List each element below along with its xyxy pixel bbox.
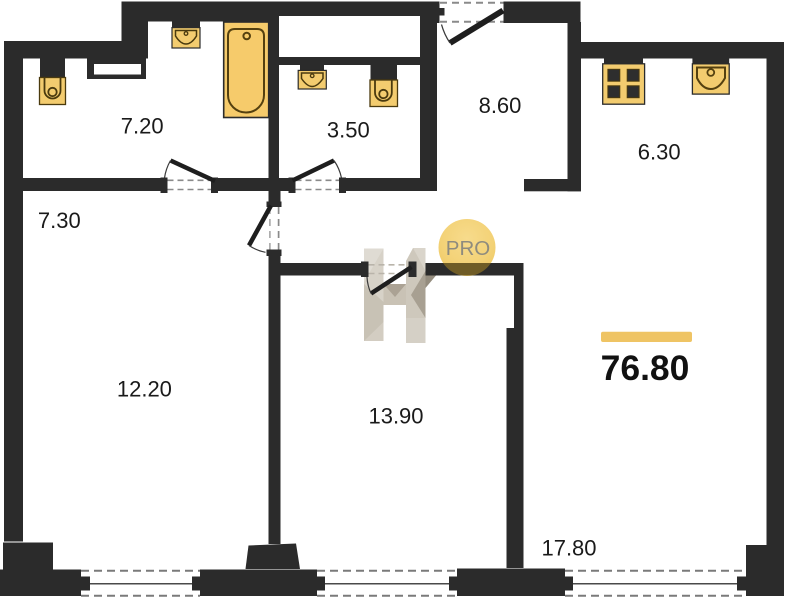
svg-text:8.60: 8.60 <box>479 93 522 118</box>
svg-text:6.30: 6.30 <box>638 140 681 165</box>
svg-text:13.90: 13.90 <box>368 404 423 429</box>
svg-text:76.80: 76.80 <box>601 348 690 388</box>
svg-text:7.20: 7.20 <box>121 114 164 139</box>
svg-text:17.80: 17.80 <box>541 536 596 561</box>
svg-text:7.30: 7.30 <box>38 208 81 233</box>
svg-text:3.50: 3.50 <box>327 118 370 143</box>
svg-text:12.20: 12.20 <box>117 376 172 401</box>
svg-text:PRO: PRO <box>446 237 490 260</box>
